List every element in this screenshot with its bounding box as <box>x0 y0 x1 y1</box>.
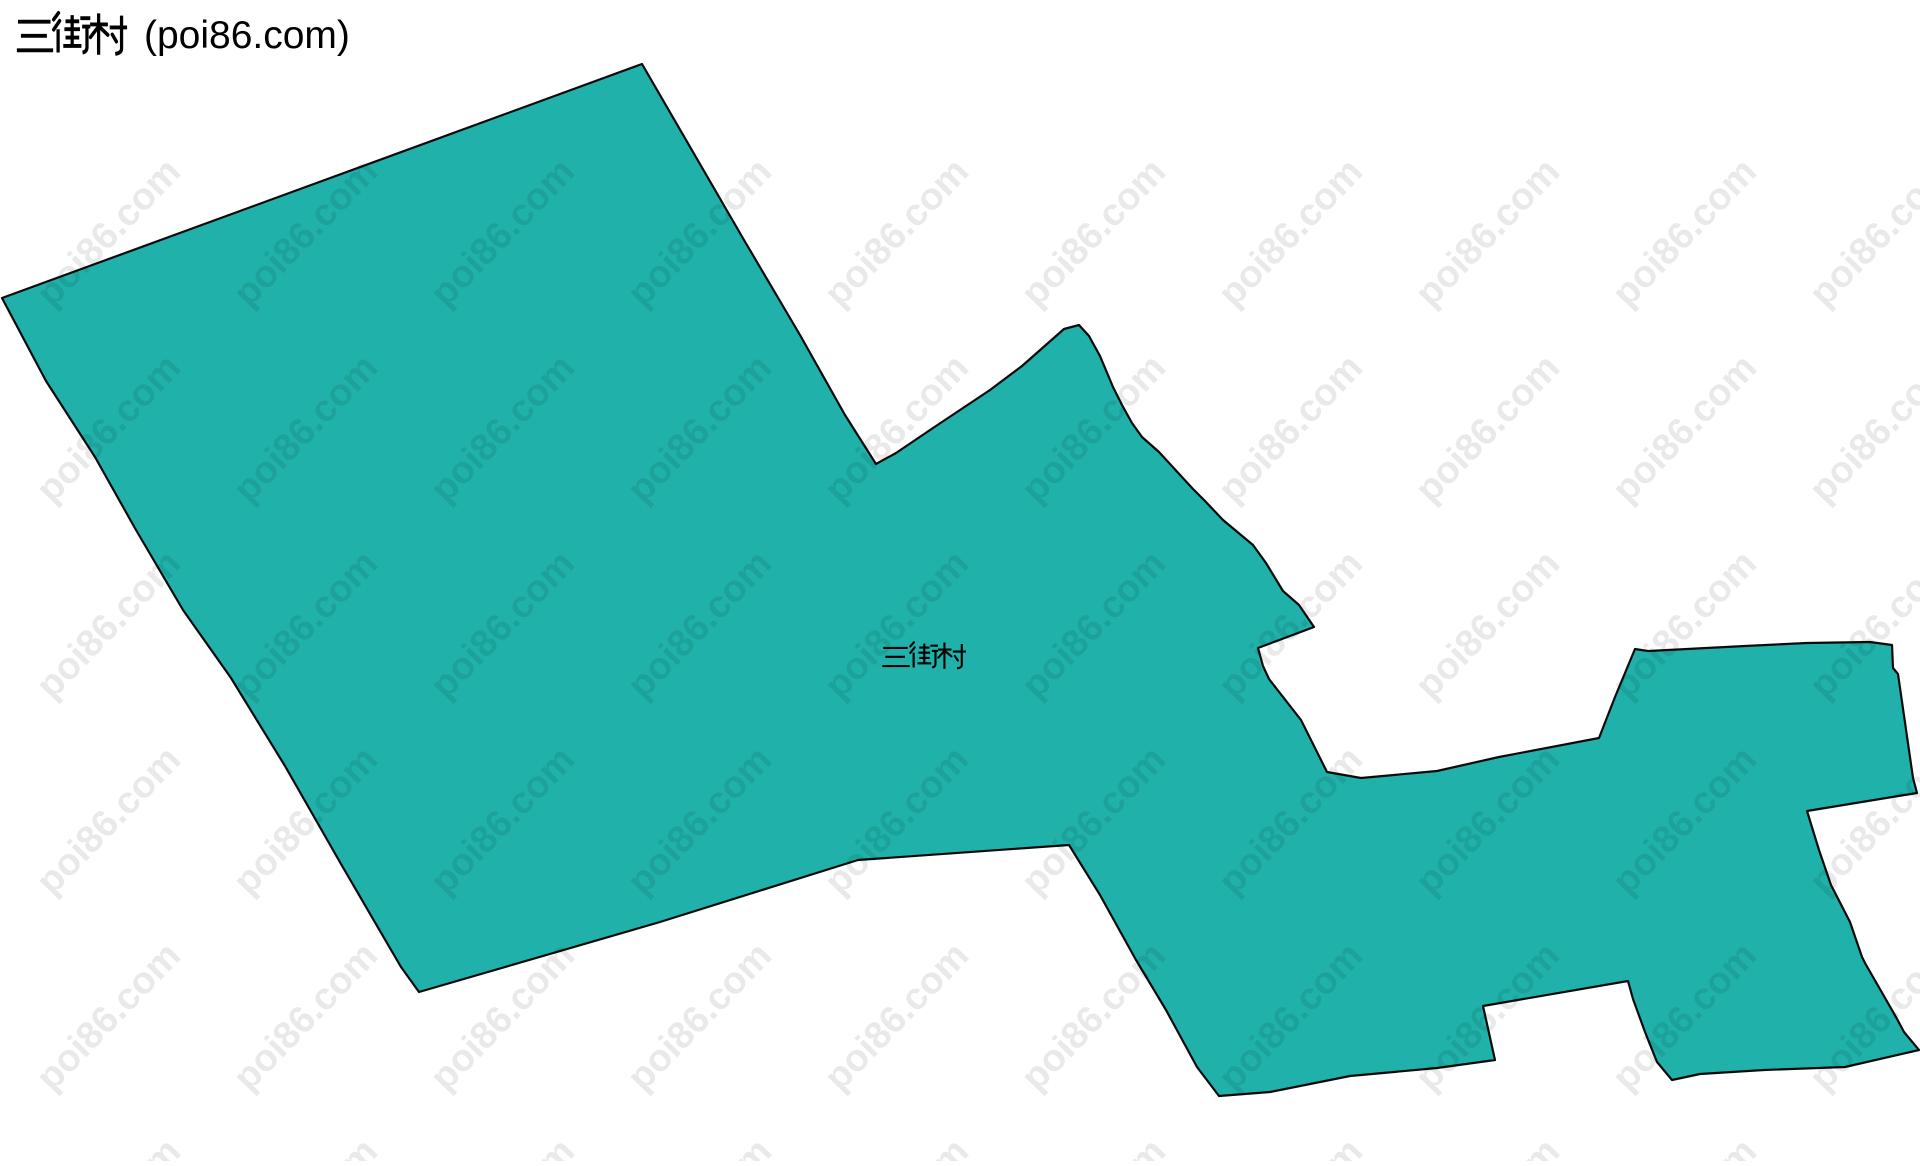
svg-text:(poi86.com): (poi86.com) <box>144 14 350 57</box>
